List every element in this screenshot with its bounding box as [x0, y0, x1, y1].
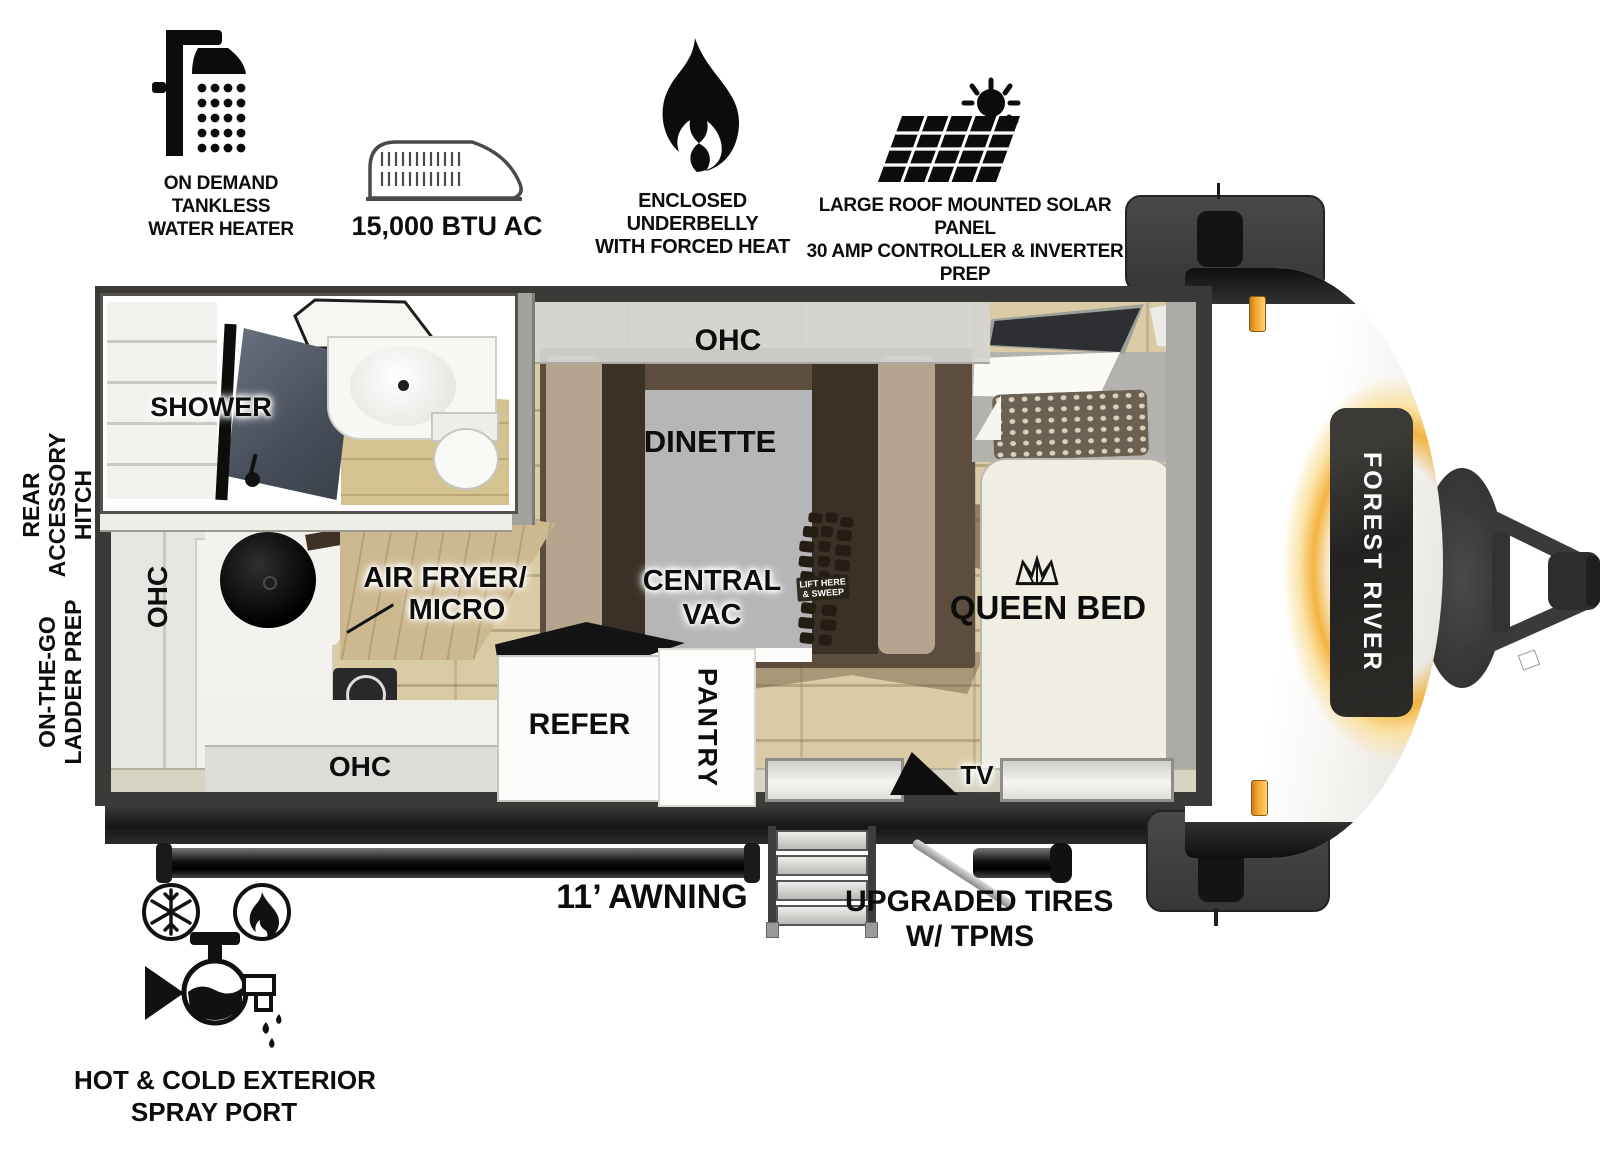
marker-light [1251, 780, 1268, 816]
caption-line: WATER HEATER [140, 218, 302, 241]
cap-bottom-rim [1185, 822, 1443, 858]
awning-roller [163, 848, 755, 878]
dinette-bench [546, 356, 602, 654]
tires-line: W/ TPMS [845, 919, 1095, 954]
caption-line: SPRAY PORT [74, 1096, 354, 1128]
boot-badge: LIFT HERE & SWEEP [788, 574, 858, 604]
marker-light [1249, 296, 1266, 332]
tires-line: UPGRADED TIRES [845, 884, 1095, 919]
step-rail [768, 826, 776, 930]
caption-line: TANKLESS [140, 195, 302, 218]
floorplan: TV OHC DINETTE QUEEN BED [95, 286, 1212, 806]
water-heater-caption: ON DEMAND TANKLESS WATER HEATER [140, 172, 302, 241]
shower-icon [150, 22, 272, 156]
side-label-line: ACCESSORY [44, 430, 70, 580]
solar-caption: LARGE ROOF MOUNTED SOLAR PANEL 30 AMP CO… [790, 194, 1140, 286]
boot-badge-line: & SWEEP [800, 586, 847, 599]
air-fryer-line: MICRO [362, 594, 552, 627]
window [1000, 758, 1174, 802]
solar-panel-icon [858, 76, 1024, 192]
tv-label: TV [947, 760, 1007, 791]
ohc-top-label: OHC [653, 324, 803, 358]
dinette-bench [878, 356, 935, 654]
side-label-line: HITCH [70, 430, 96, 580]
pantry-label: PANTRY [692, 668, 723, 788]
side-label-line: ON-THE-GO [34, 597, 60, 767]
step-tread [776, 855, 868, 876]
coupler-end [1586, 556, 1600, 606]
step-foot [766, 922, 779, 938]
ohc-bottom-label: OHC [295, 751, 425, 783]
spray-port-caption: HOT & COLD EXTERIOR SPRAY PORT [74, 1064, 354, 1128]
antenna [1217, 183, 1220, 199]
toilet-bowl [433, 428, 499, 490]
awning-label: 11’ AWNING [540, 878, 764, 917]
central-vac-label2: VAC [622, 599, 802, 632]
awning-end-cap [744, 843, 760, 883]
storage-handle [1197, 211, 1243, 267]
shower-label: SHOWER [141, 392, 281, 423]
window [765, 758, 904, 802]
caption-line: 30 AMP CONTROLLER & INVERTER PREP [790, 240, 1140, 286]
brand-label: FOREST RIVER [1357, 452, 1386, 673]
queen-bed-label: QUEEN BED [928, 589, 1168, 627]
brand-badge: FOREST RIVER [1330, 408, 1413, 717]
dinette-label: DINETTE [620, 424, 800, 460]
floorplan-page: ON DEMAND TANKLESS WATER HEATER 15,000 B… [0, 0, 1600, 1151]
rear-accessory-hitch-label: REAR ACCESSORY HITCH [18, 430, 96, 580]
central-vac-line: CENTRAL [622, 565, 802, 598]
front-wall [1166, 302, 1196, 790]
bathroom: SHOWER [100, 293, 518, 514]
kitchen-sink-drain [263, 576, 277, 590]
crown-icon [1012, 552, 1062, 592]
bed-pillow [992, 389, 1149, 460]
ac-unit-icon [360, 132, 532, 208]
sink-drain [398, 380, 409, 391]
caption-line: LARGE ROOF MOUNTED SOLAR PANEL [790, 194, 1140, 240]
refer-label: REFER [503, 708, 656, 742]
front-cap: FOREST RIVER [1185, 268, 1443, 858]
underbelly-caption: ENCLOSED UNDERBELLY WITH FORCED HEAT [580, 190, 805, 259]
side-label-line: REAR [18, 430, 44, 580]
ohc-left-text: OHC [145, 532, 171, 662]
air-fryer-line: AIR FRYER/ [350, 562, 540, 595]
awning-end-knob [1050, 843, 1072, 883]
air-fryer-label2: MICRO [362, 594, 552, 627]
cap-top-rim [1185, 268, 1443, 304]
pantry: PANTRY [658, 648, 756, 807]
tires-label: UPGRADED TIRES W/ TPMS [845, 884, 1095, 954]
ladder-prep-label: ON-THE-GO LADDER PREP [34, 597, 86, 767]
ac-caption: 15,000 BTU AC [338, 211, 556, 242]
caption-line: ENCLOSED UNDERBELLY [580, 190, 805, 236]
jack-post [1492, 532, 1510, 632]
safety-chain-tag [1518, 649, 1540, 670]
caption-line: WITH FORCED HEAT [580, 236, 805, 259]
awning-roller [973, 848, 1059, 878]
caption-line: ON DEMAND [140, 172, 302, 195]
chassis-rail [105, 806, 1205, 844]
central-vac-line: VAC [622, 599, 802, 632]
air-fryer-label: AIR FRYER/ [350, 562, 540, 595]
side-label-line: LADDER PREP [60, 597, 86, 767]
central-vac-label: CENTRAL [622, 565, 802, 598]
spray-port-icon [138, 876, 294, 1056]
drain-stub [1214, 908, 1218, 926]
step-tread [776, 830, 868, 851]
flame-icon [645, 36, 741, 182]
caption-line: HOT & COLD EXTERIOR [74, 1064, 354, 1096]
ohc-left-label: OHC [145, 532, 171, 662]
